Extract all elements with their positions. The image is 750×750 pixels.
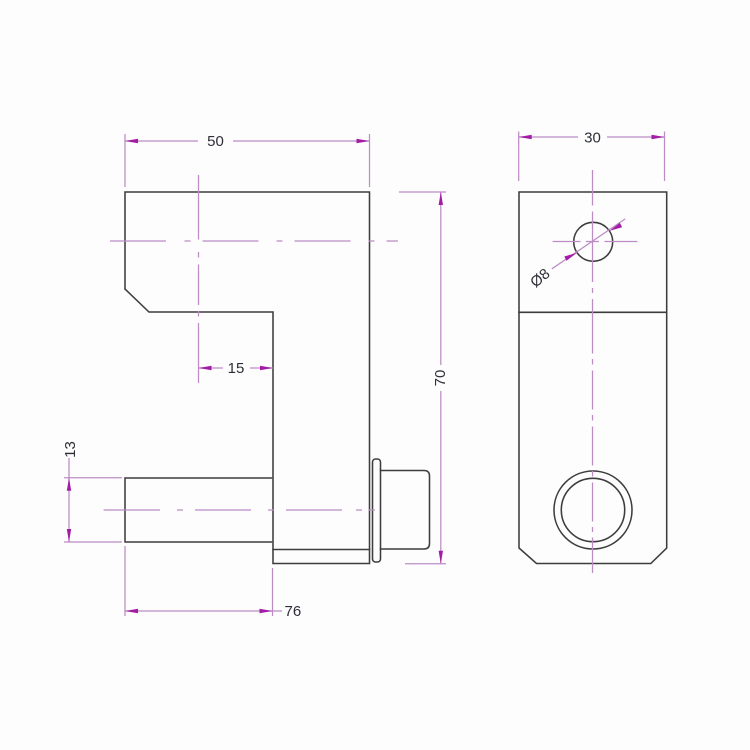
svg-text:76: 76 [285, 603, 302, 620]
svg-text:15: 15 [228, 360, 245, 377]
svg-text:30: 30 [584, 130, 601, 147]
svg-text:70: 70 [432, 370, 449, 387]
svg-text:13: 13 [62, 441, 79, 458]
svg-text:50: 50 [207, 133, 224, 150]
